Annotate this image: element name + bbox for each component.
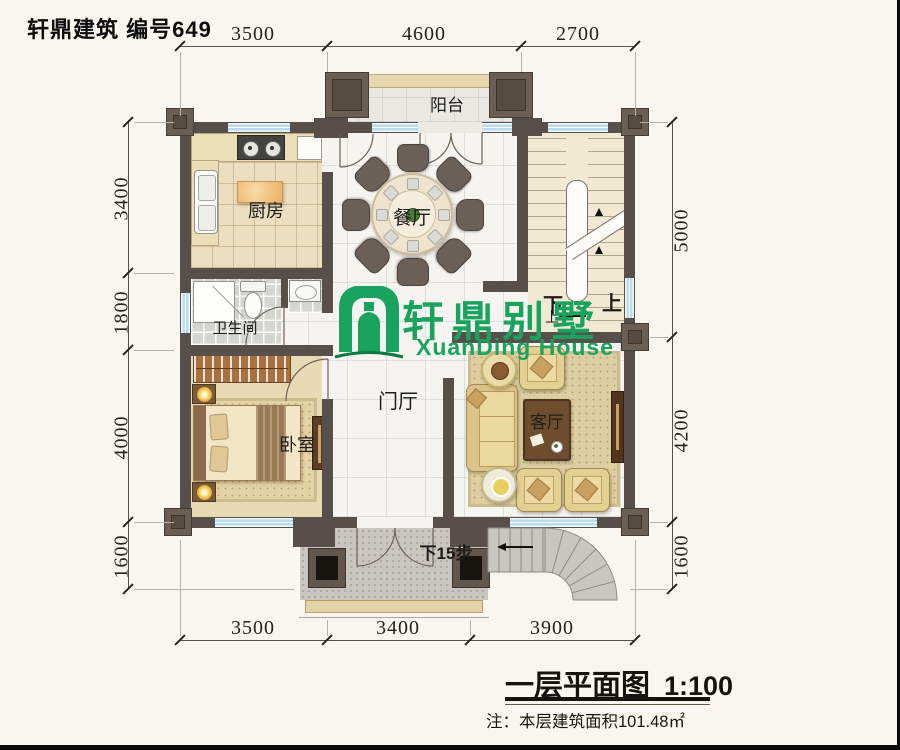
dim-label: 4000: [111, 408, 134, 468]
extension-line: [134, 273, 174, 274]
logo-swoosh: [335, 353, 403, 358]
balcony-door-arc: [420, 133, 451, 164]
floor-plan-page: 阳台 厨房 餐厅 卫生间 卧室 门厅 客厅 下 上 上 下15步 轩鼎别墅 Xu…: [0, 0, 900, 750]
dim-label: 2700: [548, 23, 608, 46]
bedroom-door-arc: [286, 359, 328, 401]
extension-line: [650, 522, 668, 523]
dim-line-top: [180, 46, 635, 47]
room-label-living: 客厅: [517, 408, 577, 433]
dim-label: 3500: [223, 23, 283, 46]
extension-line: [635, 540, 636, 636]
room-label-bedroom: 卧室: [267, 431, 327, 457]
dim-label: 3400: [368, 617, 428, 640]
extension-line: [327, 52, 328, 72]
dim-label: 4200: [671, 401, 694, 461]
title-underline-thin: [505, 704, 710, 705]
extension-line: [640, 122, 668, 123]
page-border-bottom: [0, 745, 900, 750]
extension-line: [180, 540, 181, 636]
kitchen-door-arc: [340, 134, 373, 167]
room-label-foyer: 门厅: [368, 385, 428, 414]
dim-label: 3400: [111, 169, 134, 229]
extension-line: [630, 589, 668, 590]
logo-bag-shape: [358, 312, 380, 352]
room-label-bath: 卫生间: [203, 317, 267, 338]
dim-label: 1800: [111, 283, 134, 343]
front-door-arc: [357, 528, 395, 566]
title-underline-thick: [505, 697, 710, 701]
dim-label: 1600: [671, 527, 694, 587]
extension-line: [134, 522, 174, 523]
room-label-balcony: 阳台: [417, 91, 477, 116]
logo-top-block: [364, 302, 374, 311]
extension-line: [470, 620, 471, 636]
dim-label: 1600: [111, 527, 134, 587]
plan-note: 注：本层建筑面积101.48㎡: [486, 708, 685, 732]
extension-line: [180, 52, 181, 116]
logo-icon: [333, 278, 405, 362]
extension-line: [134, 350, 174, 351]
brand-title: 轩鼎建筑 编号649: [27, 12, 212, 44]
dim-label: 3500: [223, 617, 283, 640]
entry-steps: [488, 528, 617, 600]
extension-line: [134, 589, 294, 590]
room-label-dining: 餐厅: [382, 203, 442, 230]
logo-en-text: XuanDing House: [416, 334, 614, 361]
extension-line: [134, 122, 174, 123]
dim-label: 3900: [522, 617, 582, 640]
extension-line: [327, 620, 328, 636]
dim-label: 4600: [394, 23, 454, 46]
extension-line: [635, 52, 636, 116]
balcony-door-arc: [451, 133, 482, 164]
porch-steps-label: 下15步: [408, 539, 484, 564]
extension-line: [650, 337, 668, 338]
dim-label: 5000: [671, 201, 694, 261]
dim-line-bottom: [180, 640, 635, 641]
porch-steps-arrow-line: [505, 546, 533, 548]
room-label-kitchen: 厨房: [236, 197, 296, 223]
extension-line: [521, 52, 522, 72]
